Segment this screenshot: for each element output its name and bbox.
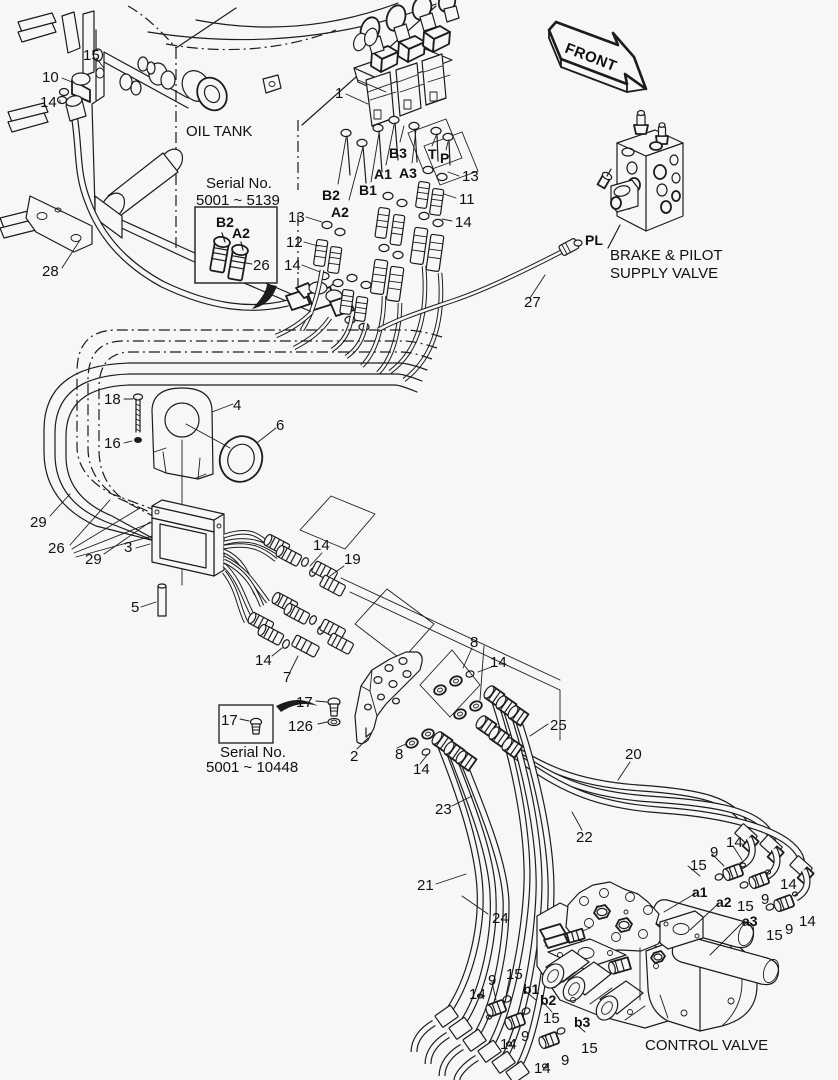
svg-text:15: 15 (581, 1040, 598, 1057)
svg-text:6: 6 (276, 417, 284, 434)
svg-text:14: 14 (469, 986, 486, 1003)
svg-text:CONTROL VALVE: CONTROL VALVE (645, 1037, 768, 1054)
svg-text:10: 10 (42, 69, 59, 86)
svg-text:14: 14 (726, 834, 743, 851)
svg-text:b2: b2 (540, 992, 557, 1008)
svg-text:SUPPLY VALVE: SUPPLY VALVE (610, 265, 718, 282)
svg-text:14: 14 (799, 913, 816, 930)
svg-text:14: 14 (780, 876, 797, 893)
svg-text:14: 14 (455, 214, 472, 231)
svg-text:9: 9 (785, 921, 793, 938)
svg-text:13: 13 (462, 168, 479, 185)
svg-text:8: 8 (395, 746, 403, 763)
svg-text:5: 5 (131, 599, 139, 616)
svg-text:15: 15 (690, 857, 707, 874)
svg-text:T: T (428, 146, 437, 162)
svg-text:14: 14 (500, 1036, 517, 1053)
svg-text:11: 11 (459, 191, 475, 208)
svg-text:3: 3 (124, 539, 132, 556)
svg-text:14: 14 (534, 1060, 551, 1077)
svg-text:A2: A2 (331, 204, 349, 220)
svg-text:14: 14 (413, 761, 430, 778)
svg-text:Serial No.: Serial No. (206, 175, 272, 192)
svg-text:9: 9 (761, 891, 769, 908)
svg-text:A1: A1 (374, 166, 392, 182)
svg-text:15: 15 (737, 898, 754, 915)
svg-text:14: 14 (40, 94, 57, 111)
svg-text:28: 28 (42, 263, 59, 280)
svg-text:19: 19 (344, 551, 361, 568)
svg-text:P: P (440, 150, 449, 166)
svg-text:21: 21 (417, 877, 434, 894)
svg-text:24: 24 (492, 910, 509, 927)
svg-text:a1: a1 (692, 884, 708, 900)
svg-text:4: 4 (233, 397, 241, 414)
svg-text:2: 2 (350, 748, 358, 765)
svg-text:126: 126 (288, 718, 313, 735)
svg-text:26: 26 (253, 257, 270, 274)
svg-text:14: 14 (255, 652, 272, 669)
svg-text:8: 8 (470, 634, 478, 651)
svg-text:b3: b3 (574, 1014, 591, 1030)
svg-text:b1: b1 (523, 981, 540, 997)
svg-text:12: 12 (286, 234, 303, 251)
svg-text:a2: a2 (716, 894, 732, 910)
svg-text:OIL TANK: OIL TANK (186, 123, 252, 140)
svg-text:B2: B2 (322, 187, 340, 203)
svg-text:B3: B3 (389, 145, 407, 161)
svg-text:14: 14 (284, 257, 301, 274)
svg-text:9: 9 (710, 844, 718, 861)
svg-text:18: 18 (104, 391, 121, 408)
svg-text:13: 13 (288, 209, 305, 226)
svg-text:A3: A3 (399, 165, 417, 181)
svg-text:9: 9 (488, 972, 496, 989)
svg-text:5001 ~ 5139: 5001 ~ 5139 (196, 192, 280, 209)
svg-text:BRAKE & PILOT: BRAKE & PILOT (610, 247, 723, 264)
svg-text:23: 23 (435, 801, 452, 818)
svg-text:15: 15 (766, 927, 783, 944)
svg-text:15: 15 (543, 1010, 560, 1027)
svg-text:27: 27 (524, 294, 541, 311)
svg-text:A2: A2 (232, 225, 250, 241)
svg-text:22: 22 (576, 829, 593, 846)
svg-text:20: 20 (625, 746, 642, 763)
svg-text:5001 ~ 10448: 5001 ~ 10448 (206, 759, 298, 776)
svg-text:15: 15 (506, 966, 523, 983)
svg-text:17: 17 (296, 694, 313, 711)
svg-text:29: 29 (85, 551, 102, 568)
svg-text:9: 9 (561, 1052, 569, 1069)
svg-text:15: 15 (83, 47, 100, 64)
svg-text:B1: B1 (359, 182, 377, 198)
svg-text:17: 17 (221, 712, 238, 729)
svg-text:1: 1 (335, 85, 343, 102)
svg-text:29: 29 (30, 514, 47, 531)
svg-text:26: 26 (48, 540, 65, 557)
svg-text:25: 25 (550, 717, 567, 734)
svg-text:9: 9 (521, 1028, 529, 1045)
svg-text:a3: a3 (742, 913, 758, 929)
svg-text:PL: PL (585, 232, 603, 248)
svg-text:14: 14 (490, 654, 507, 671)
svg-text:14: 14 (313, 537, 330, 554)
svg-text:16: 16 (104, 435, 121, 452)
